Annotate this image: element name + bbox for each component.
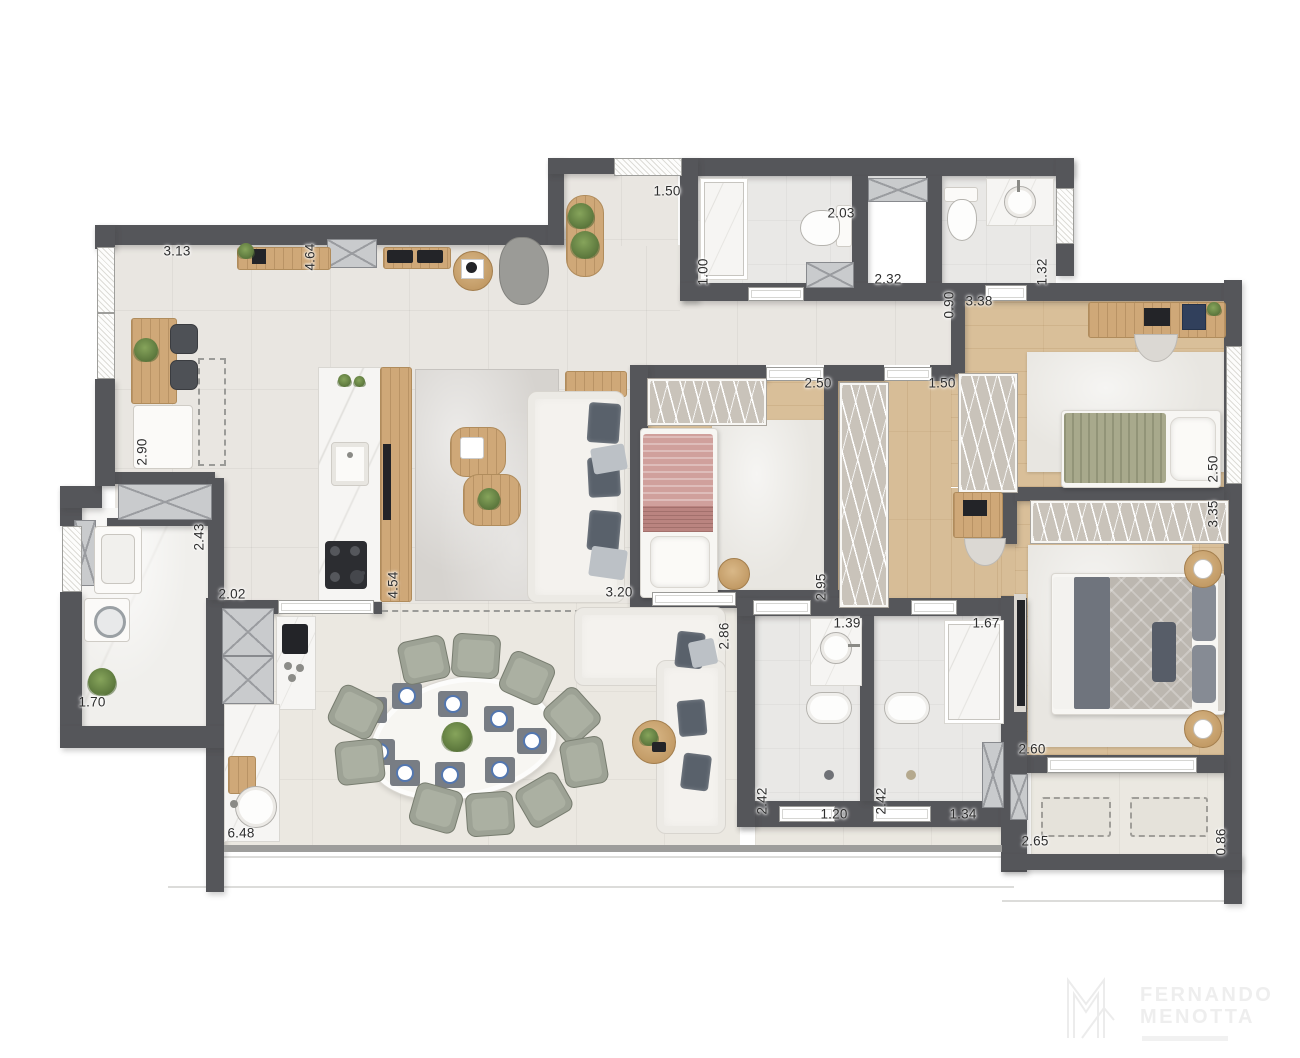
wall-segment: [852, 176, 868, 284]
wardrobe-bedroom-3: [959, 374, 1017, 492]
place-setting: [484, 706, 514, 732]
service-plant: [88, 668, 116, 696]
dimension-label: 2.43: [192, 523, 206, 550]
dimension-label: 2.60: [1018, 742, 1045, 756]
terrace-faucet: [230, 800, 238, 808]
slab-edge-left: [168, 886, 1014, 888]
entry-door: [614, 158, 682, 176]
window-service: [62, 526, 82, 592]
dimension-label: 2.50: [804, 376, 831, 390]
logo-name-line-2: MENOTTA: [1140, 1006, 1255, 1029]
dimension-label: 1.00: [696, 258, 710, 285]
master-accent-pillow: [1152, 622, 1176, 682]
terrace-sink: [235, 786, 277, 828]
wardrobe-master: [1031, 501, 1228, 543]
laptop-bedroom-3: [1144, 308, 1170, 326]
espresso-machine: [282, 624, 308, 654]
bottle-tray-2: [417, 250, 443, 263]
burner-2: [350, 546, 360, 556]
place-setting: [390, 760, 420, 786]
dimension-label: 4.64: [303, 243, 317, 270]
master-throw-dark: [1074, 577, 1110, 709]
dimension-label: 4.54: [386, 571, 400, 598]
window-master: [1047, 757, 1197, 773]
terrace-pillow-2: [676, 699, 707, 737]
projection-dashed: [198, 358, 226, 466]
office-chair-2: [170, 360, 198, 390]
dining-chair: [451, 632, 502, 679]
toilet-4: [884, 692, 930, 724]
plant-bedroom-3: [1207, 302, 1221, 316]
wall-segment: [1015, 487, 1224, 501]
shaft-service: [118, 484, 212, 520]
dimension-label: 2.65: [1021, 834, 1048, 848]
dining-chair: [465, 790, 516, 837]
wardrobe-corridor: [840, 383, 888, 607]
dimension-label: 2.03: [827, 206, 854, 220]
window-bedroom-3: [1226, 346, 1242, 484]
office-plant: [134, 338, 158, 362]
terrace-blanket: [688, 638, 719, 669]
door-bathroom-1: [748, 287, 804, 301]
lamp-1: [1193, 559, 1213, 579]
burner-3: [330, 572, 340, 582]
terrace-railing: [224, 845, 1002, 852]
dimension-label: 1.50: [928, 376, 955, 390]
island-herb-1: [338, 374, 351, 387]
master-pillow-2: [1192, 645, 1216, 703]
dimension-label: 2.86: [717, 622, 731, 649]
lamp-2: [1193, 719, 1213, 739]
burner-1: [330, 546, 340, 556]
wall-segment: [737, 598, 755, 827]
wall-segment: [95, 225, 115, 249]
dimension-label: 1.20: [820, 807, 847, 821]
sofa-blanket-2: [588, 546, 628, 581]
bed-3-blanket: [1064, 413, 1166, 483]
poster-bedroom-3: [1182, 304, 1206, 330]
laptop-corridor: [963, 500, 987, 516]
toilet-3: [806, 692, 852, 724]
basin-bathroom-2: [1004, 186, 1036, 218]
wall-segment: [860, 616, 874, 801]
island-sink: [331, 442, 369, 486]
service-sink-basin: [101, 534, 135, 584]
closet-bathroom-1: [806, 262, 854, 288]
master-headboard: [1218, 575, 1224, 711]
window-bedroom-2: [652, 592, 736, 606]
office-chair-1: [170, 324, 198, 354]
shaft-balcony-1: [982, 742, 1004, 808]
slab-edge-right: [1002, 900, 1242, 902]
wall-segment: [926, 176, 942, 284]
coffee-table-plant: [478, 488, 500, 510]
logo-name-line-1: FERNANDO: [1140, 984, 1273, 1007]
faucet-bathroom-3: [848, 644, 860, 647]
door-bathroom-4: [911, 600, 957, 615]
master-pillow-1: [1192, 583, 1216, 641]
shower-bathroom-4: [944, 620, 1004, 724]
dimension-label: 2.42: [874, 787, 888, 814]
dining-centerpiece: [442, 722, 472, 752]
console-plant: [238, 243, 254, 259]
dimension-label: 3.20: [605, 585, 632, 599]
wall-segment: [60, 726, 232, 748]
coffee-cups: [284, 662, 292, 670]
bed-2-blanket: [643, 434, 713, 508]
dimension-label: 2.95: [814, 573, 828, 600]
floor-plan: 3.13 4.64 1.50 2.03 1.00 2.32 0.90 3.38 …: [0, 0, 1300, 1058]
sofa-pillow-1: [587, 402, 622, 444]
wall-segment: [548, 158, 616, 174]
wall-segment: [824, 365, 884, 381]
dimension-label: 1.67: [972, 616, 999, 630]
coffee-table-tray: [460, 437, 484, 459]
balcony-bench-2: [1130, 797, 1208, 837]
place-setting: [435, 762, 465, 788]
dimension-label: 2.90: [135, 438, 149, 465]
place-setting: [517, 728, 547, 754]
island-herb-2: [354, 376, 365, 387]
wall-segment: [1001, 854, 1242, 870]
shaft-terrace-1: [222, 608, 274, 656]
pan: [350, 570, 364, 584]
wall-segment: [678, 158, 1074, 176]
dimension-label: 1.39: [833, 616, 860, 630]
shaft-balcony-2: [1010, 774, 1028, 820]
place-setting: [392, 683, 422, 709]
balcony-bench-1: [1041, 797, 1111, 837]
window-office: [97, 247, 115, 313]
bed-2-pillow: [650, 536, 710, 588]
armchair: [499, 237, 549, 305]
wall-segment: [60, 486, 102, 508]
master-quilt: [1110, 577, 1192, 709]
floor-terrace-strip: [755, 827, 1002, 847]
wardrobe-bedroom-2: [648, 379, 766, 425]
place-setting: [438, 691, 468, 717]
logo-m-mark-icon: [1062, 972, 1128, 1042]
floor-hallway: [680, 301, 951, 365]
place-setting: [485, 757, 515, 783]
dimension-label: 1.70: [78, 695, 105, 709]
dimension-label: 2.32: [874, 272, 901, 286]
washer-door: [94, 606, 126, 638]
faucet-bathroom-2: [1017, 180, 1020, 192]
window-office-2: [97, 313, 115, 379]
dimension-label: 0.90: [942, 291, 956, 318]
window-bathroom-2: [1056, 188, 1074, 244]
vinyl-disc: [466, 262, 477, 273]
logo-tagline-bar: [1142, 1036, 1228, 1041]
dimension-label: 3.35: [1206, 500, 1220, 527]
shower-head-3: [824, 770, 834, 780]
railing-line: [224, 856, 1002, 858]
bedroom-2-pouf: [718, 558, 750, 590]
dimension-label: 3.13: [163, 244, 190, 258]
dining-chair: [334, 738, 386, 787]
dimension-label: 3.38: [965, 294, 992, 308]
shaft-terrace-2: [222, 656, 274, 704]
living-tv: [383, 444, 391, 520]
door-corridor: [884, 367, 932, 381]
terrace-pillow-3: [680, 752, 712, 791]
dimension-label: 0.86: [1214, 828, 1228, 855]
bed-2-blanket-band: [643, 506, 713, 532]
master-sheet: [1053, 577, 1075, 709]
dimension-label: 1.32: [1035, 258, 1049, 285]
dining-chair: [558, 735, 610, 790]
toilet-2-bowl: [947, 199, 977, 241]
shower-head-4: [906, 770, 916, 780]
brand-logo: FERNANDO MENOTTA: [1062, 972, 1277, 1052]
master-tv: [1017, 600, 1025, 706]
dimension-label: 1.50: [653, 184, 680, 198]
side-table-books: [652, 742, 666, 752]
door-bathroom-3: [753, 600, 811, 615]
closet-kitchen: [327, 239, 377, 268]
wall-segment: [95, 379, 115, 486]
bottle-tray-1: [387, 250, 413, 263]
entry-plant-1: [568, 203, 594, 229]
basin-bathroom-3: [820, 632, 852, 664]
sink-faucet: [347, 452, 353, 458]
dimension-label: 2.50: [1206, 455, 1220, 482]
entry-plant-2: [571, 231, 599, 259]
dimension-label: 1.34: [949, 807, 976, 821]
pass-through-kitchen: [278, 600, 374, 614]
coffee-machine: [252, 249, 266, 264]
closet-bathrooms: [868, 178, 928, 202]
dimension-label: 2.42: [755, 787, 769, 814]
dimension-label: 2.02: [218, 587, 245, 601]
dimension-label: 6.48: [227, 826, 254, 840]
